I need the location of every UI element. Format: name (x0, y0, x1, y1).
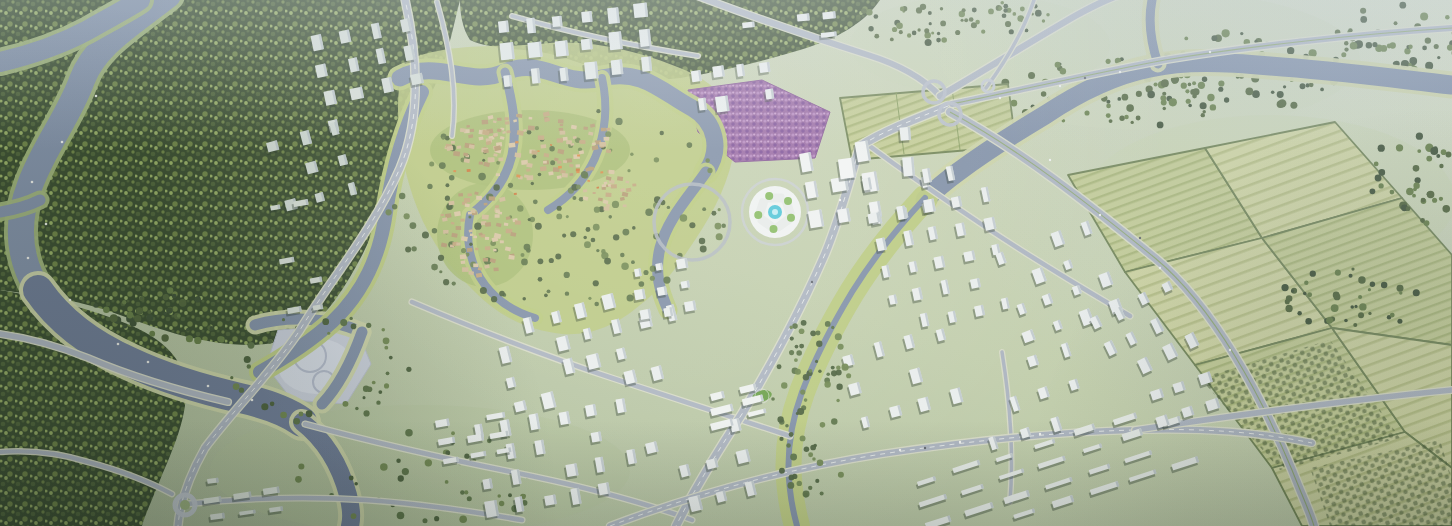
shade-bottom (0, 420, 1452, 526)
masterplan-scene (0, 0, 1452, 526)
scene-layers (0, 0, 1452, 526)
aerial-city-masterplan-render: Aerial masterplan rendering of a planned… (0, 0, 1452, 526)
